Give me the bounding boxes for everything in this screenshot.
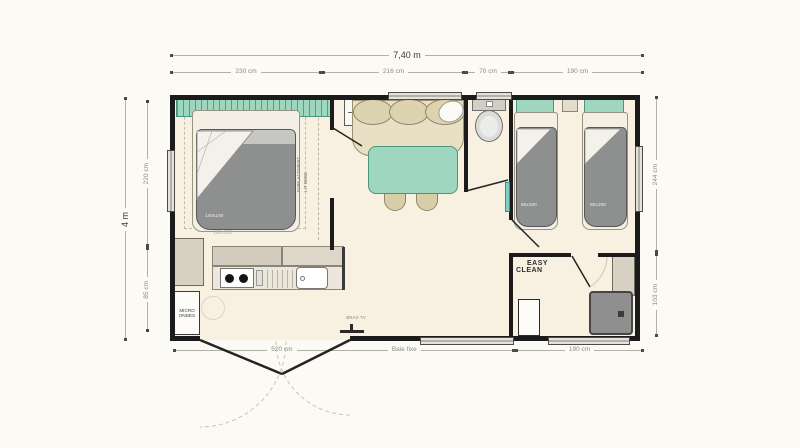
dim-top-seg-2-label: 216 cm: [379, 69, 408, 76]
dim-total-height: 4 m: [120, 97, 131, 341]
dim-top-seg-3: 70 cm: [465, 68, 511, 77]
dim-bottom-seg-2-label: 190 cm: [565, 347, 594, 354]
dim-left-seg-2: 85 cm: [143, 247, 152, 332]
dim-total-width-label: 7,40 m: [389, 51, 425, 60]
dim-bottom-fixed-bay-label: Baie fixe: [388, 347, 421, 354]
dim-top-seg-2: 216 cm: [322, 68, 465, 77]
dim-left-seg-1: 220 cm: [143, 100, 152, 247]
dim-right-seg-1-label: 244 cm: [653, 160, 660, 189]
dim-right-seg-2: 103 cm: [652, 253, 661, 337]
dim-top-seg-4-label: 190 cm: [563, 69, 592, 76]
window-bottom-bathroom: [548, 337, 630, 345]
french-door-opening: [200, 336, 350, 345]
dim-top-seg-1: 230 cm: [170, 68, 322, 77]
window-left: [167, 150, 175, 212]
dim-top-seg-4: 190 cm: [511, 68, 644, 77]
dim-bottom-seg-1-label: 520 cm: [267, 347, 296, 354]
dim-left-seg-2-label: 85 cm: [144, 277, 151, 303]
window-bottom-fixed-bay: [420, 337, 514, 345]
window-top-dinette: [388, 92, 462, 100]
window-top-wc: [476, 92, 512, 100]
floor-plan-canvas: 7,40 m 230 cm 216 cm 70 cm 190 cm 4 m 22…: [0, 0, 800, 448]
outer-wall: [170, 95, 640, 341]
window-right: [635, 146, 643, 212]
dim-bottom-seg-2: 190 cm: [515, 346, 644, 355]
dim-bottom-seg-1: 520 cm Baie fixe: [173, 346, 515, 355]
dim-left-seg-1-label: 220 cm: [144, 159, 151, 188]
dim-right-seg-1: 244 cm: [652, 96, 661, 253]
dim-top-seg-1-label: 230 cm: [231, 69, 260, 76]
dim-right-seg-2-label: 103 cm: [653, 280, 660, 309]
dim-total-height-label: 4 m: [121, 208, 130, 231]
dim-total-width: 7,40 m: [170, 50, 644, 61]
dim-top-seg-3-label: 70 cm: [475, 69, 501, 76]
